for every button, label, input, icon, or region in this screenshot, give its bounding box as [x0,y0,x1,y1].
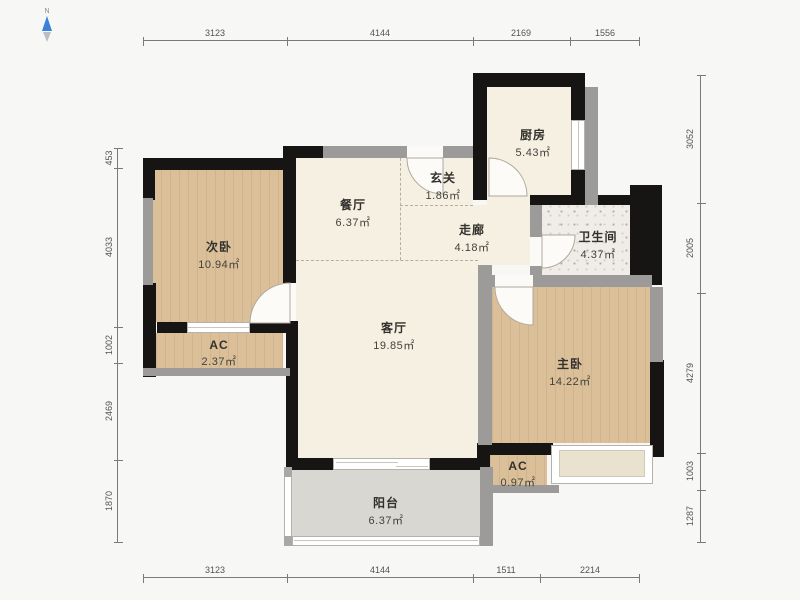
compass-north-label: N [36,8,58,16]
room-label-kitchen: 厨房 5.43㎡ [516,126,551,160]
room-label-second-bedroom: 次卧 10.94㎡ [198,238,240,272]
room-label-corridor: 走廊 4.18㎡ [455,221,490,255]
room-label-entry: 玄关 1.86㎡ [426,169,461,203]
compass-needle-south [43,32,51,42]
room-label-living: 客厅 19.85㎡ [373,319,415,353]
north-compass-icon: N [36,8,58,54]
room-label-ac-left: AC 2.37㎡ [202,338,237,369]
master-door-arc [495,287,533,325]
room-label-master-bedroom: 主卧 14.22㎡ [549,355,591,389]
room-label-dining: 餐厅 6.37㎡ [336,196,371,230]
second-bedroom-door-arc [250,283,290,323]
floorplan-page: { "compass": { "label": "N" }, "rooms": … [0,0,800,600]
room-label-bathroom: 卫生间 4.37㎡ [578,228,617,262]
bathroom-door-arc [542,235,575,268]
room-label-ac-right: AC 0.97㎡ [501,459,536,490]
compass-needle-north [42,16,52,31]
room-label-balcony: 阳台 6.37㎡ [369,494,404,528]
kitchen-door-arc [489,158,527,196]
